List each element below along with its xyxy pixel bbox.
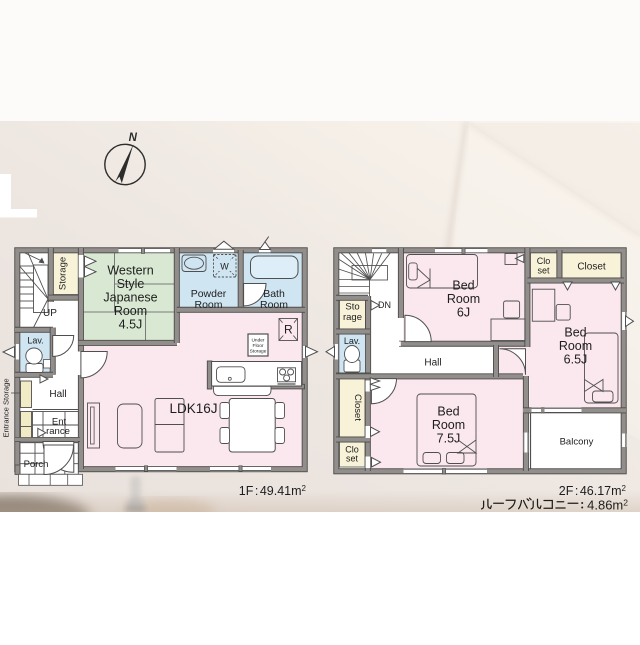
svg-text:Floor: Floor [253, 343, 264, 349]
svg-text:rage: rage [343, 312, 362, 323]
svg-text:Lav.: Lav. [27, 336, 43, 346]
svg-text:N: N [129, 132, 138, 144]
svg-text:Storage: Storage [58, 257, 69, 290]
svg-text:R: R [284, 323, 293, 337]
svg-text:Japanese: Japanese [103, 291, 157, 305]
svg-text:Room: Room [260, 299, 288, 311]
svg-text:Bed: Bed [437, 405, 459, 419]
svg-text:Bed: Bed [452, 279, 474, 293]
svg-text:Bed: Bed [564, 326, 586, 340]
svg-text:6.5J: 6.5J [564, 353, 588, 367]
svg-text:Room: Room [559, 339, 592, 353]
svg-text:Western: Western [107, 264, 153, 278]
svg-text:6J: 6J [457, 306, 470, 320]
svg-text:rance: rance [46, 426, 70, 437]
svg-text:Under: Under [251, 338, 264, 344]
svg-text:Lav.: Lav. [344, 336, 360, 346]
svg-text:Sto: Sto [345, 302, 359, 313]
svg-text:Room: Room [194, 299, 222, 311]
svg-text:2F:46.17m2: 2F:46.17m2 [559, 484, 627, 498]
svg-text:4.86m2: 4.86m2 [587, 498, 628, 513]
svg-text:Clo: Clo [537, 256, 551, 266]
svg-text:LDK16J: LDK16J [169, 401, 217, 416]
svg-text:Room: Room [432, 418, 465, 432]
svg-text:Style: Style [117, 277, 145, 291]
svg-text:Entrance Storage: Entrance Storage [2, 378, 11, 437]
svg-text:7.5J: 7.5J [437, 432, 461, 446]
svg-text:UP: UP [43, 308, 57, 319]
svg-text:Balcony: Balcony [560, 437, 594, 448]
svg-text:Closet: Closet [352, 394, 363, 421]
svg-text:Hall: Hall [424, 358, 441, 369]
svg-text:set: set [346, 454, 359, 464]
svg-text:Porch: Porch [24, 459, 49, 470]
svg-text:set: set [537, 266, 550, 276]
svg-text:Room: Room [447, 292, 480, 306]
svg-text:Storage: Storage [250, 349, 267, 355]
svg-text:Room: Room [114, 304, 147, 318]
svg-text:1F:49.41m2: 1F:49.41m2 [239, 484, 307, 498]
svg-text:Closet: Closet [577, 262, 606, 273]
svg-text:Hall: Hall [49, 389, 66, 400]
svg-text:4.5J: 4.5J [119, 318, 143, 332]
svg-text:W: W [220, 262, 229, 272]
